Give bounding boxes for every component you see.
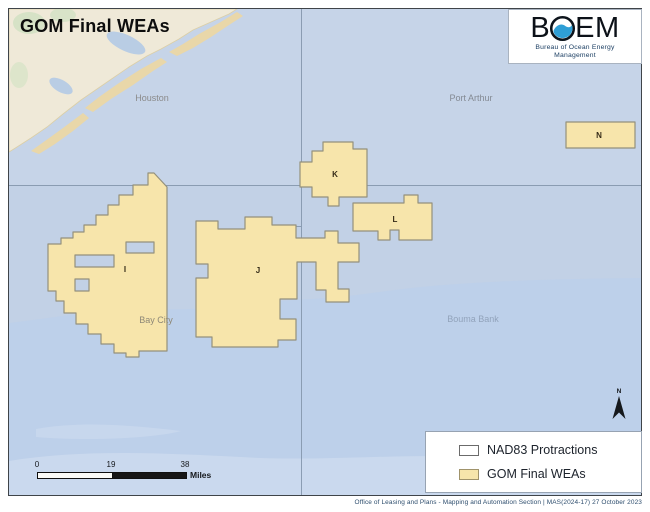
scale-tick-0: 0: [35, 460, 39, 469]
scale-bar-segment-black: [112, 473, 187, 478]
land-green-patch: [10, 62, 28, 88]
wea-label-n: N: [596, 131, 602, 140]
wea-label-k: K: [332, 170, 338, 179]
boem-subtitle: Bureau of Ocean Energy Management: [535, 44, 614, 60]
legend-label-protractions: NAD83 Protractions: [487, 443, 597, 457]
boem-subtitle-line1: Bureau of Ocean Energy: [535, 44, 614, 52]
legend-item-protractions: NAD83 Protractions: [459, 440, 641, 460]
legend: NAD83 Protractions GOM Final WEAs: [425, 431, 642, 493]
scale-tick-19: 19: [107, 460, 116, 469]
attribution-text: Office of Leasing and Plans - Mapping an…: [0, 499, 642, 506]
scale-bar-rule: [37, 472, 187, 479]
map-frame: Houston Port Arthur Bay City Bouma Bank …: [8, 8, 642, 496]
boem-letters-em: EM: [575, 14, 620, 43]
wea-label-j: J: [256, 266, 260, 275]
boem-wordmark: B EM: [530, 14, 619, 43]
place-label-bay-city: Bay City: [139, 315, 173, 325]
scale-bar-segment-white: [38, 473, 112, 478]
map-title: GOM Final WEAs: [20, 16, 170, 37]
scale-bar-ticks: 0 19 38: [37, 460, 237, 470]
protraction-swatch-icon: [459, 445, 479, 456]
north-arrow-label: N: [617, 388, 622, 395]
wea-label-i: I: [124, 265, 126, 274]
boem-subtitle-line2: Management: [535, 52, 614, 60]
boem-wave-o-icon: [549, 15, 576, 42]
place-label-bouma-bank: Bouma Bank: [447, 314, 499, 324]
place-label-port-arthur: Port Arthur: [449, 93, 492, 103]
scale-tick-38: 38: [181, 460, 190, 469]
map-document: Houston Port Arthur Bay City Bouma Bank …: [0, 0, 650, 512]
boem-logo: B EM Bureau of Ocean Energy Management: [508, 9, 642, 64]
wea-label-l: L: [393, 215, 398, 224]
place-label-houston: Houston: [135, 93, 169, 103]
wea-swatch-icon: [459, 469, 479, 480]
boem-letter-b: B: [530, 14, 550, 43]
legend-label-weas: GOM Final WEAs: [487, 467, 586, 481]
legend-item-weas: GOM Final WEAs: [459, 464, 641, 484]
map-canvas: Houston Port Arthur Bay City Bouma Bank …: [9, 9, 641, 495]
scale-bar-unit: Miles: [190, 470, 211, 480]
scale-bar: 0 19 38 Miles: [37, 460, 237, 482]
